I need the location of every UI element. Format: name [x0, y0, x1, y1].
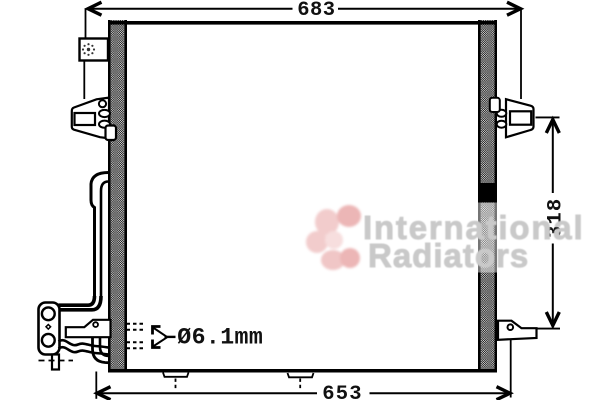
- svg-text:683: 683: [297, 0, 335, 22]
- svg-text:Radiators: Radiators: [368, 237, 529, 274]
- svg-text:653: 653: [322, 383, 362, 400]
- svg-text:Ø6.1mm: Ø6.1mm: [177, 324, 263, 350]
